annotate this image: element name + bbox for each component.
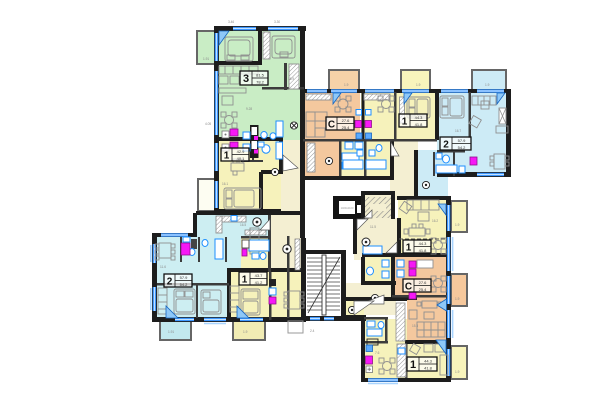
svg-text:3.30: 3.30: [274, 20, 280, 24]
svg-text:78.2: 78.2: [256, 80, 265, 85]
svg-text:16.1: 16.1: [222, 182, 228, 186]
svg-text:3: 3: [243, 73, 249, 85]
svg-text:44.3: 44.3: [415, 115, 424, 120]
svg-text:C: C: [405, 282, 412, 293]
svg-text:1.9: 1.9: [485, 83, 490, 87]
svg-text:1.9: 1.9: [455, 223, 460, 227]
svg-text:43.7: 43.7: [255, 273, 264, 278]
svg-text:2: 2: [443, 140, 449, 151]
svg-text:41.8: 41.8: [424, 366, 433, 371]
svg-text:16.7: 16.7: [455, 129, 461, 133]
svg-text:1.9: 1.9: [243, 330, 248, 334]
svg-text:1.9: 1.9: [455, 370, 460, 374]
svg-text:1.9: 1.9: [416, 83, 421, 87]
svg-text:16.9: 16.9: [288, 77, 294, 81]
svg-text:40.1: 40.1: [237, 156, 246, 161]
svg-text:11.5: 11.5: [370, 225, 376, 229]
svg-text:1.91: 1.91: [168, 330, 174, 334]
svg-text:1: 1: [224, 151, 230, 162]
svg-text:41.8: 41.8: [415, 122, 424, 127]
svg-text:27.6: 27.6: [419, 280, 428, 285]
svg-text:2.4: 2.4: [310, 329, 315, 333]
svg-text:81.5: 81.5: [256, 73, 265, 78]
svg-text:16.2: 16.2: [432, 219, 438, 223]
svg-text:1400x2100: 1400x2100: [341, 206, 354, 210]
svg-text:7.6: 7.6: [375, 351, 380, 355]
svg-text:3.46: 3.46: [228, 20, 234, 24]
svg-text:25.4: 25.4: [419, 287, 428, 292]
svg-text:C: C: [328, 120, 335, 131]
svg-text:1: 1: [410, 359, 416, 371]
svg-text:54.2: 54.2: [180, 282, 189, 287]
svg-text:11.6: 11.6: [160, 265, 166, 269]
svg-text:41.2: 41.2: [255, 280, 264, 285]
svg-text:2: 2: [167, 277, 173, 288]
svg-text:1.9: 1.9: [344, 83, 349, 87]
svg-text:1.9: 1.9: [455, 297, 460, 301]
svg-text:1: 1: [406, 243, 412, 254]
svg-text:1: 1: [402, 117, 408, 128]
svg-text:54.2: 54.2: [458, 145, 467, 150]
svg-text:15.3: 15.3: [412, 324, 418, 328]
svg-text:57.9: 57.9: [458, 138, 467, 143]
svg-text:1: 1: [242, 275, 248, 286]
svg-text:4.05: 4.05: [205, 122, 211, 126]
svg-text:25.4: 25.4: [342, 125, 351, 130]
svg-text:9.28: 9.28: [246, 107, 252, 111]
svg-text:57.9: 57.9: [180, 275, 189, 280]
svg-text:42.9: 42.9: [237, 149, 246, 154]
svg-text:41.8: 41.8: [419, 248, 428, 253]
svg-text:44.3: 44.3: [424, 359, 433, 364]
svg-text:1.91: 1.91: [203, 57, 209, 61]
svg-text:16.5: 16.5: [240, 223, 246, 227]
svg-text:27.6: 27.6: [342, 118, 351, 123]
svg-text:44.3: 44.3: [419, 241, 428, 246]
